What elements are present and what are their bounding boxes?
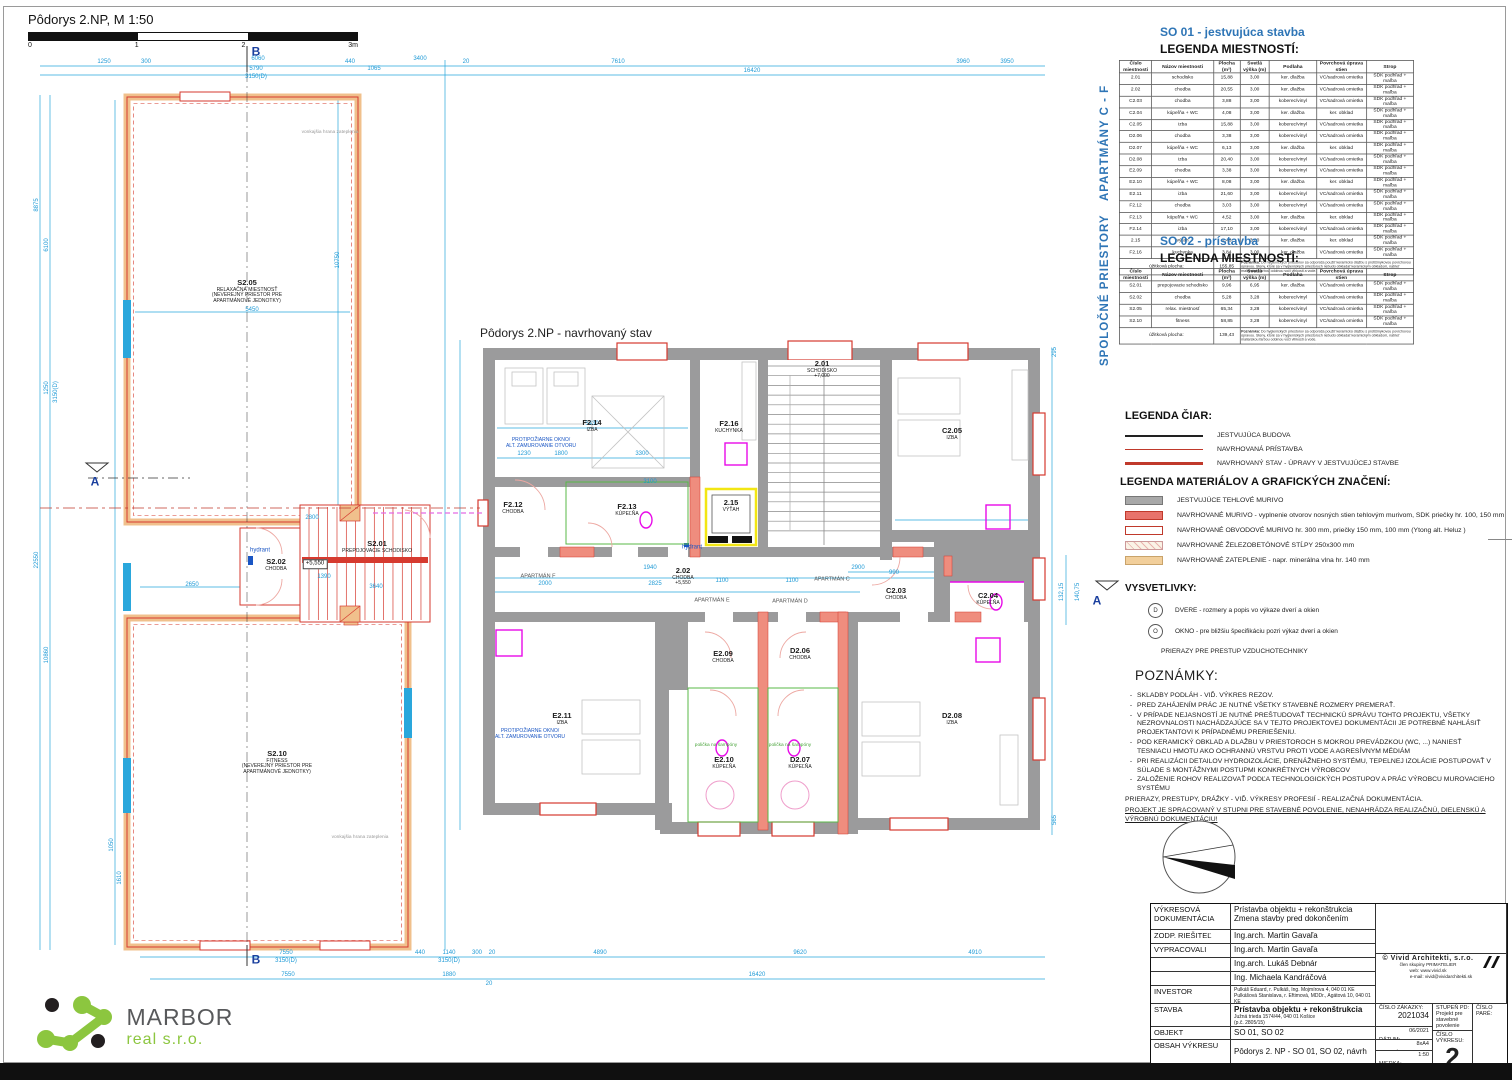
dimension-label: 5450 <box>245 307 258 313</box>
dimension-label: 3150(D) <box>245 74 267 80</box>
dimension-label: 1250 <box>44 381 50 394</box>
legend-lines-title: LEGENDA ČIAR: <box>1125 410 1212 422</box>
vysvetlivky-title: VYSVETLIVKY: <box>1125 583 1197 594</box>
marbor-logo-sub: real s.r.o. <box>126 1031 233 1049</box>
tb-investor-label: INVESTOR <box>1151 986 1231 1004</box>
poznamky-line1: PRIERAZY, PRESTUPY, DRÁŽKY - VIĎ. VÝKRES… <box>1125 796 1497 805</box>
room-label-d208: D2.08IZBA <box>942 712 962 726</box>
dimension-label: 16420 <box>749 972 766 978</box>
door-symbol-icon: D <box>1148 603 1163 618</box>
dimension-label: 3150(D) <box>275 958 297 964</box>
dimension-label: 1250 <box>97 59 110 65</box>
room-label-215: 2.15VÝŤAH <box>723 499 740 513</box>
legend-material-item: NAVRHOVANÉ MURIVO - vyplnenie otvorov no… <box>1125 511 1510 520</box>
legend-material-item: NAVRHOVANÉ ZATEPLENIE - napr. minerálna … <box>1125 556 1510 565</box>
dimension-label: 7550 <box>281 972 294 978</box>
room-label-c205: C2.05IZBA <box>942 427 962 441</box>
dimension-label: 3640 <box>369 584 382 590</box>
table-row: D2.07kúpeľňa + WC6,133,00ker. dlažbaker.… <box>1119 142 1413 154</box>
tb-mierka: MIERKA: 1:50 <box>1376 1051 1433 1063</box>
dimension-label: 1065 <box>367 66 380 72</box>
dimension-label: 9620 <box>793 950 806 956</box>
north-arrow <box>1158 816 1240 898</box>
dimension-label: 140,75 <box>1075 583 1081 601</box>
room-label-d206: D2.06CHODBA <box>789 647 810 661</box>
tb-doc-value: Prístavba objektu + rekonštrukcia Zmena … <box>1231 904 1376 930</box>
table-footer: úžitková plocha:139,43Poznámka: Do hygie… <box>1119 327 1413 343</box>
vivid-logo-icon <box>1477 955 1503 969</box>
section-marker-a-left <box>86 463 108 472</box>
room-label-c203: C2.03CHODBA <box>885 587 906 601</box>
table-row: D2.08izba20,403,00koberec/vinylVC/sadrov… <box>1119 154 1413 166</box>
dimension-label: 3400 <box>413 56 426 62</box>
dimension-label: 7550 <box>279 950 292 956</box>
secmark-label: A <box>1093 594 1102 609</box>
tb-firm: © Vivid Architekti, s.r.o. člen skupiny … <box>1376 954 1507 1004</box>
tb-obsah-value: Pôdorys 2. NP - SO 01, SO 02, návrh <box>1231 1040 1376 1063</box>
poznamky-bullet: -POD KERAMICKÝ OBKLAD A DLAŽBU V PRIESTO… <box>1125 739 1497 757</box>
tb-stupen: STUPEŇ PD: Projekt pre stavebné povoleni… <box>1433 1004 1473 1031</box>
poznamky-bullet: -ZALOŽENIE ROHOV REALIZOVAŤ PODĽA TECHNO… <box>1125 776 1497 794</box>
dimension-label: 1940 <box>643 565 656 571</box>
dimension-label: 2900 <box>851 565 864 571</box>
poznamky-bullet: -PRED ZAHÁJENÍM PRÁC JE NUTNÉ VŠETKY STA… <box>1125 702 1497 711</box>
tb-objekt-value: SO 01, SO 02 <box>1231 1027 1376 1040</box>
dimension-label: 440 <box>345 59 355 65</box>
dimension-label: 20 <box>463 59 470 65</box>
tb-obsah-label: OBSAH VÝKRESU <box>1151 1040 1231 1063</box>
room-label-s202: S2.02CHODBA <box>265 558 286 572</box>
table-row: S2.10fitness58,853,28koberec/vinylVC/sad… <box>1119 316 1413 328</box>
dimension-label: 1100 <box>716 578 729 584</box>
table-row: E2.09chodba3,383,00koberec/vinylVC/sadro… <box>1119 166 1413 178</box>
scale-bar-ticks: 0123m <box>28 42 358 49</box>
hydrant-label: hydrant <box>250 547 270 555</box>
secmark-label: A <box>91 475 100 490</box>
room-label-e210: E2.10KÚPEĽŇA <box>712 756 735 770</box>
dimension-label: 1230 <box>517 451 530 457</box>
graynote-label: vonkajšia hrana zateplenia <box>332 835 389 841</box>
main-building <box>478 341 1045 836</box>
table-row: F2.13kúpeľňa + WC4,523,00ker. dlažbaker.… <box>1119 212 1413 224</box>
dimension-label: 3300 <box>635 451 648 457</box>
tb-vyprac-2: Ing.arch. Lukáš Debnár <box>1231 958 1376 972</box>
apt-label: APARTMÁN E <box>694 598 729 605</box>
dimension-label: 1390 <box>317 574 330 580</box>
dimension-label: 2825 <box>648 581 661 587</box>
room-label-f212: F2.12CHODBA <box>502 501 523 515</box>
bottom-black-bar <box>0 1063 1512 1080</box>
tb-objekt-label: OBJEKT <box>1151 1027 1231 1040</box>
level-label: +5,550 <box>303 559 328 569</box>
legend-material-item: NAVRHOVANÉ OBVODOVÉ MURIVO hr. 300 mm, p… <box>1125 526 1510 535</box>
secmark-label: B <box>252 45 261 60</box>
dimension-label: 7610 <box>611 59 624 65</box>
dimension-label: 6100 <box>44 238 50 251</box>
side-label-apartmany: APARTMÁNY C - F <box>1099 71 1111 201</box>
dimension-label: 1100 <box>786 578 799 584</box>
poznamky-bullet: -V PRÍPADE NEJASNOSTÍ JE NUTNÉ PREŠTUDOV… <box>1125 712 1497 738</box>
apt-label: APARTMÁN C <box>814 577 850 584</box>
vysvetlivky-item: OOKNO - pre bližšiu špecifikáciu pozri v… <box>1148 624 1508 639</box>
so02-heading: SO 02 - prístavba <box>1160 234 1258 248</box>
so01-subheading: LEGENDA MIESTNOSTÍ: <box>1160 42 1299 56</box>
dimension-label: 20 <box>486 981 493 987</box>
room-label-f213: F2.13KÚPEĽŇA <box>615 503 638 517</box>
legend-lines-list: JESTVUJÚCA BUDOVANAVRHOVANÁ PRÍSTAVBANAV… <box>1125 432 1505 474</box>
room-label-f216: F2.16KUCHYNKA <box>715 420 743 434</box>
bluenote-label: PROTIPOŽIARNE OKNO/ALT. ZAMUROVANIE OTVO… <box>506 437 576 450</box>
tb-vyprac-3: Ing. Michaela Kandráčová <box>1231 972 1376 986</box>
tb-datum: DÁTUM: 06/2021 <box>1376 1027 1433 1040</box>
table-row: C2.03chodba3,883,00koberec/vinylVC/sadro… <box>1119 96 1413 108</box>
dimension-label: 3100 <box>643 479 656 485</box>
dimension-label: 2000 <box>538 581 551 587</box>
table-row: 2.01schodisko15,883,00ker. dlažbaVC/sadr… <box>1119 73 1413 85</box>
dimension-label: 295 <box>1052 347 1058 357</box>
table-row: C2.04kúpeľňa + WC4,083,00ker. dlažbaker.… <box>1119 108 1413 120</box>
dimension-label: 10750 <box>335 252 341 269</box>
dimension-label: 3960 <box>956 59 969 65</box>
dimension-label: 1880 <box>442 972 455 978</box>
dimension-label: 4910 <box>968 950 981 956</box>
dimension-label: 3150(D) <box>438 958 460 964</box>
room-label-s201: S2.01PREPOJOVACIE SCHODISKO <box>342 540 412 554</box>
poznamky-bullet: -PRI REALIZÁCII DETAILOV HYDROIZOLÁCIE, … <box>1125 758 1497 776</box>
tb-pare: ČÍSLO PARÉ: <box>1473 1004 1507 1063</box>
dimension-label: 4890 <box>593 950 606 956</box>
secmark-label: B <box>252 953 261 968</box>
vysvetlivky-item: DDVERE - rozmery a popis vo výkaze dverí… <box>1148 603 1508 618</box>
dimension-label: 1140 <box>443 950 456 956</box>
scale-bar: 0123m <box>28 32 358 49</box>
tb-vyprac-1: Ing.arch. Martin Gavaľa <box>1231 944 1376 958</box>
so02-room-table: Číslo miestnostiNázov miestnostiPlocha (… <box>1119 268 1414 344</box>
dimension-label: 565 <box>1052 815 1058 825</box>
room-label-e211: E2.11IZBA <box>552 712 571 726</box>
legend-materials-list: JESTVUJÚCE TEHLOVÉ MURIVONAVRHOVANÉ MURI… <box>1125 496 1510 571</box>
dimension-label: 300 <box>472 950 482 956</box>
dimension-label: 2650 <box>185 582 198 588</box>
section-marker-a-right <box>1096 581 1118 590</box>
annex-building <box>123 92 689 950</box>
table-row: E2.11izba21,603,00koberec/vinylVC/sadrov… <box>1119 189 1413 201</box>
dimension-label: 10860 <box>44 647 50 664</box>
room-label-c204: C2.04KÚPEĽŇA <box>976 592 999 606</box>
table-row: C2.05izba15,883,00koberec/vinylVC/sadrov… <box>1119 119 1413 131</box>
legend-materials-title: LEGENDA MATERIÁLOV A GRAFICKÝCH ZNAČENÍ: <box>1120 476 1391 488</box>
poznamky-title: POZNÁMKY: <box>1135 668 1218 683</box>
room-label-d207: D2.07KÚPEĽŇA <box>788 756 811 770</box>
room-label-e209: E2.09CHODBA <box>712 650 733 664</box>
dimension-label: 8875 <box>34 198 40 211</box>
dimension-label: 300 <box>141 59 151 65</box>
table-row: D2.06chodba3,383,00koberec/vinylVC/sadro… <box>1119 131 1413 143</box>
poznamky-bullet: -SKLADBY PODLÁH - VIĎ. VÝKRES REZOV. <box>1125 692 1497 701</box>
side-label-spolocne: SPOLOČNÉ PRIESTORY <box>1099 216 1111 366</box>
tb-stavba-value: Prístavba objektu + rekonštrukcia Južná … <box>1231 1004 1376 1027</box>
legend-material-item: JESTVUJÚCE TEHLOVÉ MURIVO <box>1125 496 1510 505</box>
title-block: VÝKRESOVÁ DOKUMENTÁCIA Prístavba objektu… <box>1150 903 1508 1064</box>
room-label-202: 2.02CHODBA+5,550 <box>672 567 693 587</box>
table-row: 2.02chodba20,553,00ker. dlažbaVC/sadrová… <box>1119 84 1413 96</box>
dimension-label: 20 <box>489 950 496 956</box>
dimension-label: 990 <box>889 570 899 576</box>
tb-stavba-label: STAVBA <box>1151 1004 1231 1027</box>
scale-bar-segments <box>28 32 358 41</box>
graynote-label: vonkajšia hrana zateplenia <box>302 130 359 136</box>
vysvetlivky-extra: PRIERAZY PRE PRESTUP VZDUCHOTECHNIKY <box>1161 648 1308 655</box>
marbor-logo-name: MARBOR <box>126 1004 233 1031</box>
table-row: S2.01prepojovacie schodisko9,966,95ker. … <box>1119 281 1413 293</box>
so02-table-wrap: Číslo miestnostiNázov miestnostiPlocha (… <box>1119 268 1414 344</box>
greennote-label: polička na šampóny <box>769 743 811 749</box>
tb-vyprac-label: VYPRACOVALI <box>1151 944 1231 958</box>
tb-cislo-vykresu: ČÍSLO VÝKRESU: 2 <box>1433 1031 1473 1063</box>
room-label-201: 2.01SCHODISKO+7,000 <box>807 360 837 380</box>
tb-investor-value: Pulkáš Eduard, r. Pulkáš, Ing. Mojmírova… <box>1231 986 1376 1004</box>
legend-material-item: NAVRHOVANÉ ŽELEZOBETÓNOVÉ STĹPY 250x300 … <box>1125 541 1510 550</box>
dimension-label: 22550 <box>34 552 40 569</box>
table-row: S2.02chodba5,283,28koberec/vinylVC/sadro… <box>1119 292 1413 304</box>
apt-label: APARTMÁN F <box>521 574 556 581</box>
table-row: S2.05relax. miestnosť65,343,28koberec/vi… <box>1119 304 1413 316</box>
tb-zodp-value: Ing.arch. Martin Gavaľa <box>1231 930 1376 944</box>
apt-label: APARTMÁN D <box>772 599 808 606</box>
tb-doc-label: VÝKRESOVÁ DOKUMENTÁCIA <box>1151 904 1231 930</box>
dimension-label: 5790 <box>249 66 262 72</box>
window-symbol-icon: O <box>1148 624 1163 639</box>
tb-zakazka: ČÍSLO ZÁKAZKY: 2021034 <box>1376 1004 1433 1027</box>
legend-line-item: NAVRHOVANÁ PRÍSTAVBA <box>1125 446 1505 453</box>
greennote-label: polička na šampóny <box>695 743 737 749</box>
vysvetlivky-list: DDVERE - rozmery a popis vo výkaze dverí… <box>1148 603 1508 645</box>
tb-format: FORMÁT: 8xA4 <box>1376 1040 1433 1051</box>
legend-line-item: JESTVUJÚCA BUDOVA <box>1125 432 1505 439</box>
dimension-label: 1610 <box>117 871 123 884</box>
dimension-label: 132,15 <box>1059 583 1065 601</box>
dimension-label: 16420 <box>744 68 761 74</box>
dimension-label: 3950 <box>1000 59 1013 65</box>
room-label-s205: S2.05RELAXAČNÁ MIESTNOSŤ(NEVEREJNÝ PRIES… <box>212 279 282 305</box>
table-row: F2.12chodba3,033,00koberec/vinylVC/sadro… <box>1119 200 1413 212</box>
room-label-f214: F2.14IZBA <box>582 419 601 433</box>
dimension-label: 1050 <box>109 838 115 851</box>
table-row: E2.10kúpeľňa + WC8,083,00ker. dlažbaker.… <box>1119 177 1413 189</box>
plan-title: Pôdorys 2.NP - navrhovaný stav <box>480 326 652 340</box>
legend-line-item: NAVRHOVANÝ STAV - ÚPRAVY V JESTVUJÚCEJ S… <box>1125 460 1505 467</box>
tb-zodp-label: ZODP. RIEŠITEĽ <box>1151 930 1231 944</box>
hydrant-label: hydrant <box>682 544 702 552</box>
poznamky-list: -SKLADBY PODLÁH - VIĎ. VÝKRES REZOV.-PRE… <box>1125 692 1497 825</box>
so01-heading: SO 01 - jestvujúca stavba <box>1160 25 1305 39</box>
dimension-label: 3150(D) <box>53 381 59 403</box>
sheet-title: Pôdorys 2.NP, M 1:50 <box>28 12 154 27</box>
marbor-logo: MARBOR real s.r.o. <box>24 993 233 1059</box>
dimension-label: 2800 <box>305 515 318 521</box>
so02-subheading: LEGENDA MIESTNOSTÍ: <box>1160 251 1299 265</box>
dimension-label: 1800 <box>554 451 567 457</box>
dimension-label: 440 <box>415 950 425 956</box>
room-label-s210: S2.10FITNESS(NEVEREJNÝ PRIESTOR PREAPART… <box>242 750 312 776</box>
bluenote-label: PROTIPOŽIARNE OKNO/ALT. ZAMUROVANIE OTVO… <box>495 728 565 741</box>
marbor-logo-icon <box>24 993 114 1059</box>
